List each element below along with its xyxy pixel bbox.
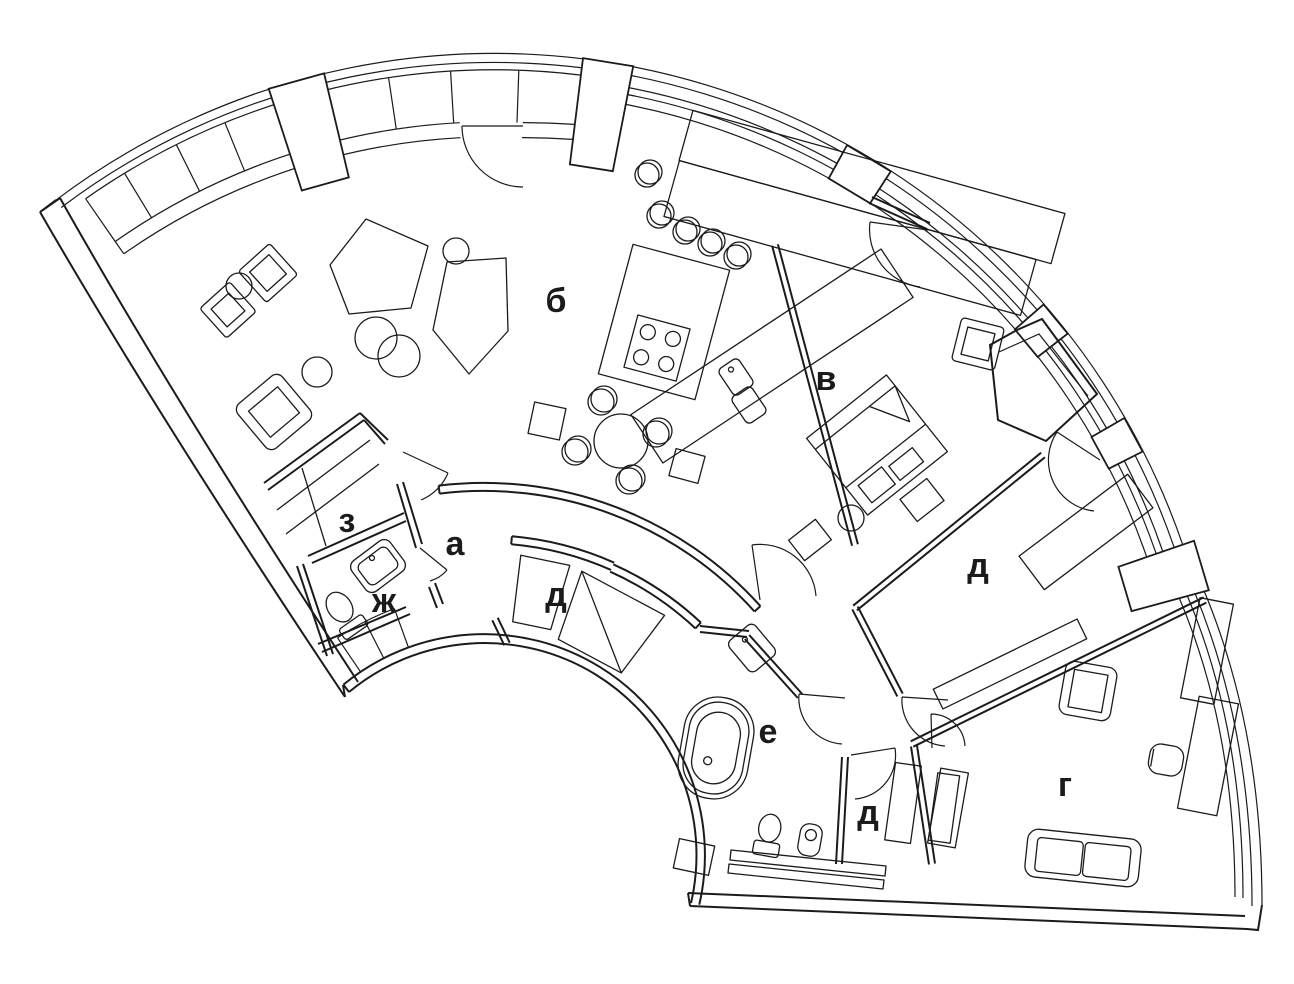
wc-door <box>420 548 447 581</box>
side-table-2 <box>302 357 332 387</box>
bedroom-v-door <box>752 544 816 600</box>
pentagon-table-1 <box>330 219 428 314</box>
door-swings <box>403 126 1100 799</box>
square-table <box>528 402 566 440</box>
floor-plan-svg: а б в г д д д е ж з <box>0 0 1294 984</box>
office-armchair <box>1058 660 1119 722</box>
dining-chairs <box>635 160 751 269</box>
office-g-door <box>931 714 965 748</box>
tub-drain <box>703 756 712 765</box>
bathroom-e-door <box>799 694 845 744</box>
wardrobe-shelves <box>513 555 665 673</box>
wardrobe-band-wall <box>492 536 701 645</box>
side-table-1 <box>226 273 252 299</box>
room-label-d1: д <box>545 576 567 614</box>
kitchen-sink-2 <box>730 385 768 425</box>
room-label-e: е <box>759 713 778 751</box>
room-label-a: а <box>446 525 466 563</box>
furniture-kitchen <box>598 244 913 483</box>
room-label-z: з <box>339 502 356 540</box>
right-window-band <box>626 88 1163 557</box>
room-label-zh: ж <box>371 582 397 620</box>
bidet-e <box>796 822 823 857</box>
corridor-wall <box>439 483 761 612</box>
kitchen-counter <box>631 249 913 463</box>
room-label-v: в <box>816 360 837 398</box>
left-gable-wall <box>40 198 358 697</box>
armchair-1 <box>238 243 297 302</box>
pentagon-table-2 <box>433 258 508 374</box>
counter-end-cabinet <box>669 449 705 484</box>
void-core-wall <box>343 634 705 905</box>
office-sofa <box>1024 828 1142 888</box>
cooktop <box>624 315 690 381</box>
kitchen-island <box>598 244 729 399</box>
closet-wedge-door <box>1048 432 1100 511</box>
bath-corner-cabinet <box>673 839 714 876</box>
bath-top-wall <box>700 626 802 698</box>
floor-lamp <box>443 238 469 264</box>
floor-plan-page: а б в г д д д е ж з <box>0 0 1294 984</box>
pier-5 <box>1092 418 1143 469</box>
furniture-bathroom <box>319 536 960 889</box>
wc-walls <box>297 564 443 656</box>
toilet-e <box>752 812 785 858</box>
round-table-chairs <box>562 386 672 494</box>
room-label-d2: д <box>967 547 989 585</box>
nightstand-1 <box>900 479 944 522</box>
dressing-wardrobe <box>933 619 1086 709</box>
nightstand-2 <box>789 519 832 560</box>
office-wardrobe <box>928 768 969 848</box>
bedroom-chair <box>951 317 1004 370</box>
facade-walls <box>40 53 1262 930</box>
pier-3 <box>829 145 891 203</box>
armchair-3 <box>233 371 315 453</box>
pouf-1 <box>355 317 397 359</box>
bedroom-dressing-walls <box>836 453 1206 865</box>
room-label-g: г <box>1058 766 1072 804</box>
office-desk-chair <box>1147 742 1186 777</box>
loggia-door <box>462 126 523 187</box>
kitchen-bedroom-door <box>870 222 928 287</box>
round-table <box>594 414 648 468</box>
pouf-2 <box>378 335 420 377</box>
bottom-wall <box>688 893 1262 930</box>
facade-outer-arc <box>56 53 1262 906</box>
closet-d3-door <box>851 748 896 799</box>
room-label-b: б <box>545 282 566 320</box>
kitchen-sink-1 <box>717 357 755 397</box>
room-label-d3: д <box>857 794 879 832</box>
storage-z-walls <box>264 413 422 563</box>
armchair-2 <box>200 282 256 338</box>
core-arc <box>343 634 705 905</box>
